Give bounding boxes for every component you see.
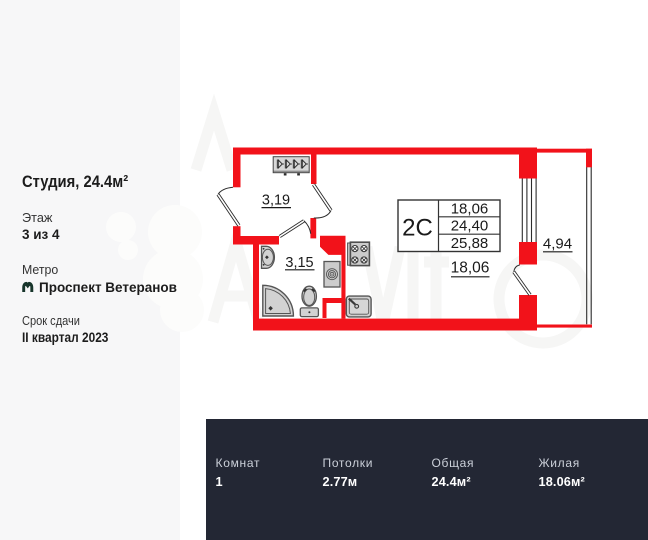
svg-text:25,88: 25,88 — [451, 235, 489, 252]
svg-text:2С: 2С — [402, 215, 433, 242]
svg-text:3,15: 3,15 — [285, 255, 313, 271]
svg-text:18,06: 18,06 — [451, 201, 489, 218]
svg-text:24,40: 24,40 — [451, 218, 489, 235]
svg-text:3,19: 3,19 — [262, 193, 290, 209]
svg-text:4,94: 4,94 — [543, 236, 572, 253]
svg-text:18,06: 18,06 — [451, 260, 490, 277]
